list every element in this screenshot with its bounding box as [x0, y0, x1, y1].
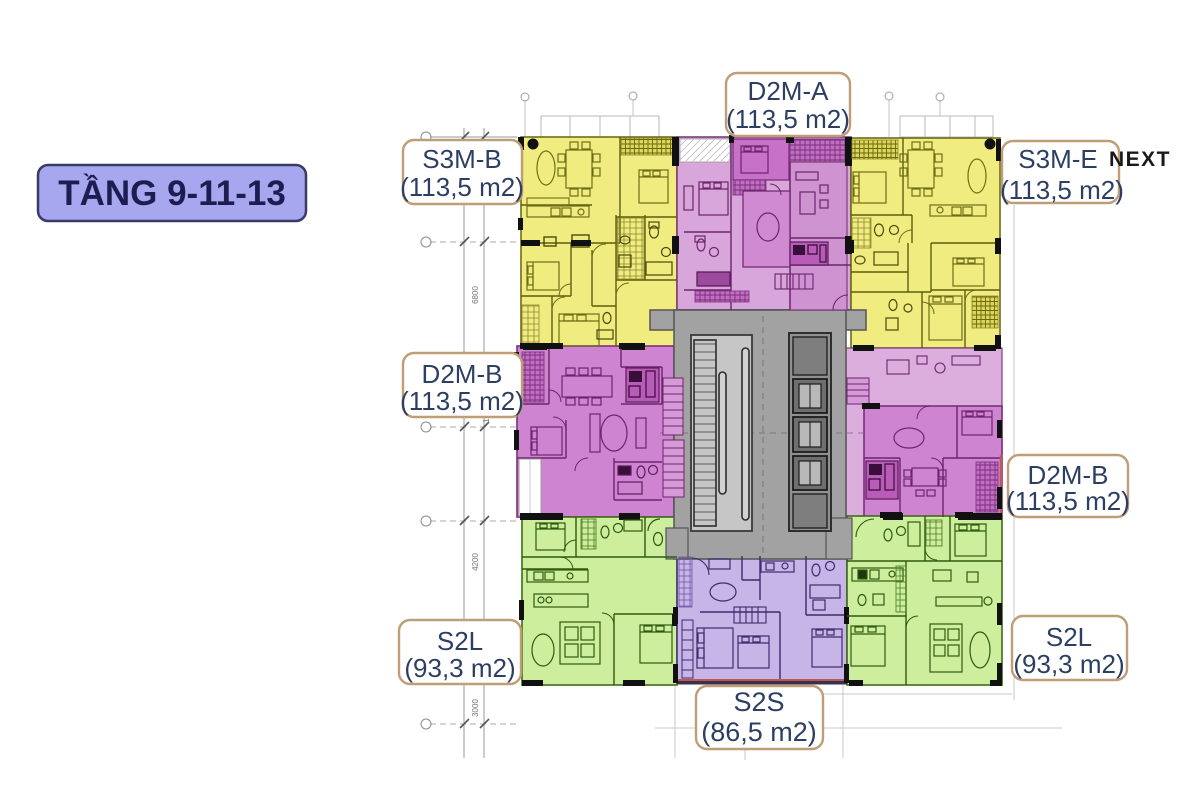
- svg-text:S3M-E: S3M-E: [1018, 144, 1097, 174]
- svg-text:(86,5 m2): (86,5 m2): [701, 717, 817, 747]
- svg-text:S2L: S2L: [437, 626, 483, 656]
- svg-text:(93,3 m2): (93,3 m2): [1013, 649, 1124, 679]
- svg-text:S2S: S2S: [733, 687, 784, 717]
- svg-text:(93,3 m2): (93,3 m2): [404, 653, 515, 683]
- svg-text:4200: 4200: [471, 553, 480, 571]
- svg-text:(113,5 m2): (113,5 m2): [1006, 486, 1130, 516]
- svg-text:D2M-B: D2M-B: [422, 359, 503, 389]
- svg-text:S3M-B: S3M-B: [422, 144, 501, 174]
- svg-text:(113,5 m2): (113,5 m2): [400, 172, 524, 202]
- svg-text:TẦNG 9-11-13: TẦNG 9-11-13: [58, 173, 286, 213]
- svg-text:NEXT: NEXT: [1109, 148, 1171, 171]
- svg-text:(113,5 m2): (113,5 m2): [1000, 175, 1124, 205]
- svg-text:S2L: S2L: [1046, 622, 1092, 652]
- svg-text:(113,5 m2): (113,5 m2): [400, 386, 524, 416]
- svg-text:3000: 3000: [471, 699, 480, 717]
- svg-text:(113,5 m2): (113,5 m2): [726, 104, 850, 134]
- svg-text:D2M-A: D2M-A: [748, 76, 830, 106]
- svg-text:6800: 6800: [471, 286, 480, 304]
